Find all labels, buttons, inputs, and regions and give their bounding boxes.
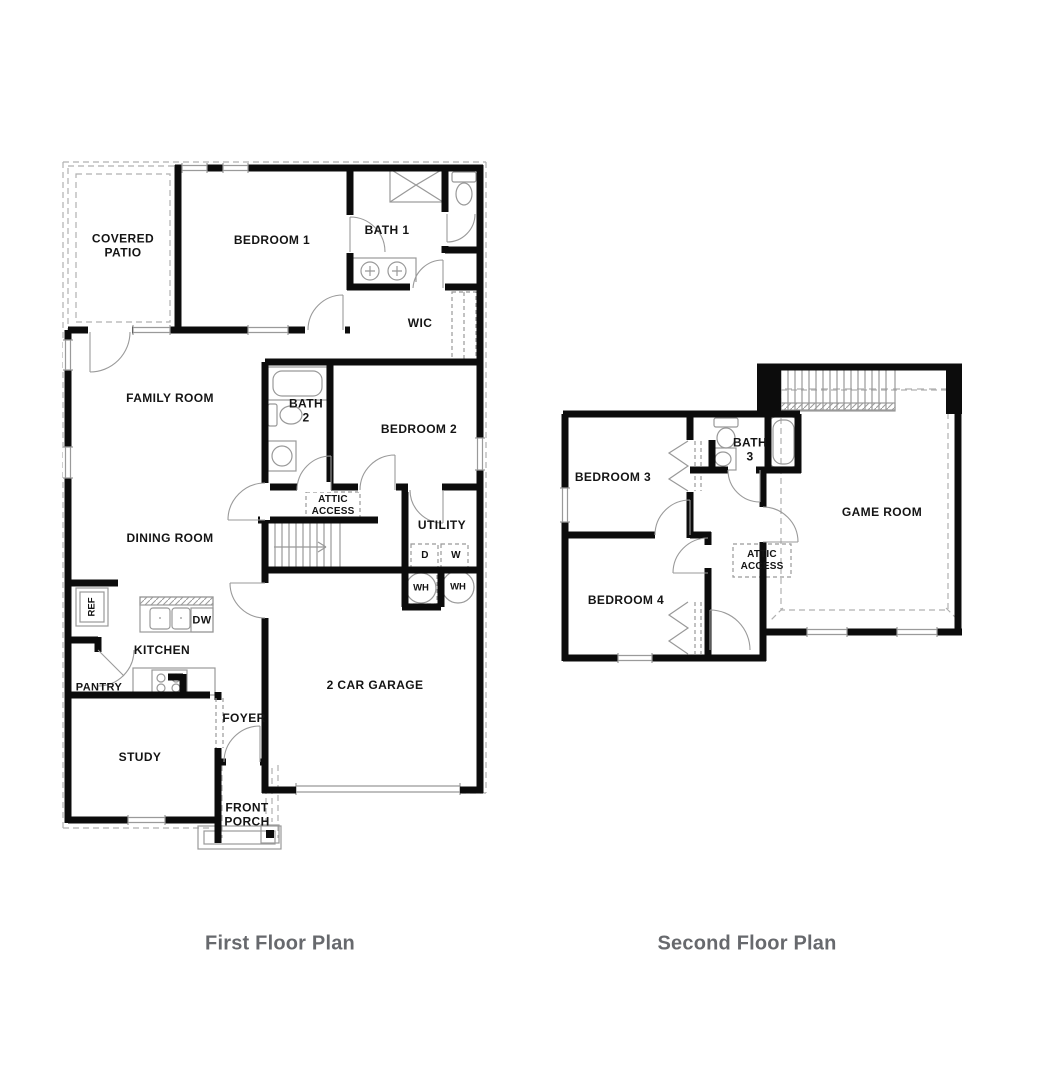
room-label-bedroom-4: BEDROOM 4 bbox=[588, 593, 664, 607]
label-refrigerator: REF bbox=[86, 598, 97, 617]
label-dishwasher: DW bbox=[192, 614, 211, 627]
room-label-covered-patio: COVERED PATIO bbox=[77, 232, 169, 261]
room-label-pantry: PANTRY bbox=[76, 681, 122, 694]
room-label-bath-2: BATH 2 bbox=[284, 397, 328, 426]
second-floor-title: Second Floor Plan bbox=[658, 933, 837, 956]
room-label-front-porch: FRONT PORCH bbox=[215, 801, 279, 830]
room-label-bath-1: BATH 1 bbox=[365, 223, 410, 237]
room-label-study: STUDY bbox=[119, 750, 162, 764]
room-label-foyer: FOYER bbox=[222, 711, 265, 725]
first-floor-title: First Floor Plan bbox=[205, 933, 355, 956]
room-label-kitchen: KITCHEN bbox=[134, 643, 190, 657]
room-label-wic: WIC bbox=[408, 316, 433, 330]
room-label-dining-room: DINING ROOM bbox=[126, 531, 213, 545]
floor-plan-canvas: COVERED PATIO BEDROOM 1 BATH 1 WIC FAMIL… bbox=[0, 0, 1050, 1070]
label-attic-access-first-floor: ATTIC ACCESS bbox=[302, 494, 364, 518]
room-label-garage: 2 CAR GARAGE bbox=[327, 678, 424, 692]
room-label-family-room: FAMILY ROOM bbox=[126, 391, 214, 405]
room-label-bedroom-1: BEDROOM 1 bbox=[234, 233, 310, 247]
label-water-heater-right: WH bbox=[450, 581, 466, 592]
first-floor-windows bbox=[63, 163, 485, 825]
room-label-bedroom-3: BEDROOM 3 bbox=[575, 470, 651, 484]
label-dryer: D bbox=[421, 550, 428, 562]
label-attic-access-second-floor: ATTIC ACCESS bbox=[731, 549, 793, 573]
room-label-bath-3: BATH 3 bbox=[728, 436, 772, 465]
first-floor-dashed-outlines bbox=[63, 162, 486, 838]
label-water-heater-left: WH bbox=[413, 582, 429, 593]
room-label-utility: UTILITY bbox=[418, 518, 466, 532]
label-washer: W bbox=[451, 550, 461, 562]
first-floor-openings bbox=[63, 163, 485, 825]
room-label-game-room: GAME ROOM bbox=[842, 505, 922, 519]
room-label-bedroom-2: BEDROOM 2 bbox=[381, 422, 457, 436]
first-floor-walls bbox=[68, 165, 483, 843]
